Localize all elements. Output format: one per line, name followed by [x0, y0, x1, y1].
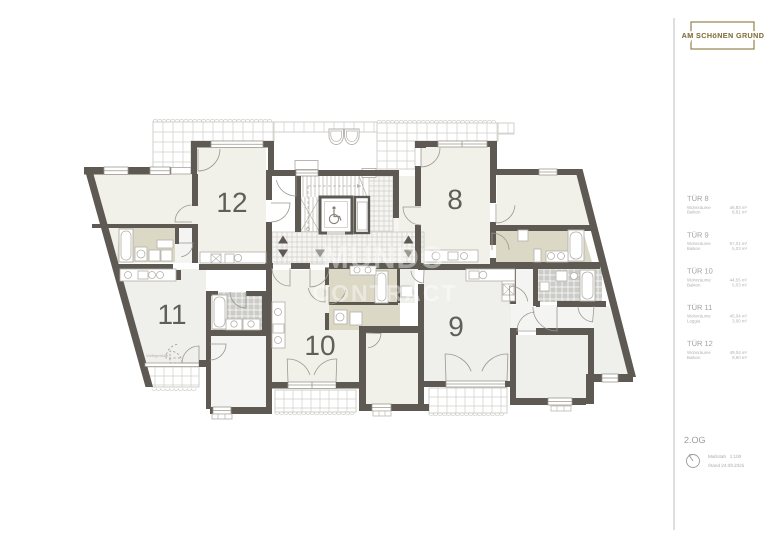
svg-text:8,61 m²: 8,61 m²: [732, 210, 747, 215]
svg-text:Stand 24.09.2025: Stand 24.09.2025: [708, 463, 745, 468]
svg-text:Loggia: Loggia: [687, 319, 701, 324]
svg-text:3,00 m²: 3,00 m²: [732, 319, 747, 324]
svg-text:2.OG: 2.OG: [684, 435, 706, 445]
svg-text:TÜR 12: TÜR 12: [687, 339, 713, 348]
svg-text:Balkon: Balkon: [687, 246, 701, 251]
svg-text:Vorlegestufe: Vorlegestufe: [146, 353, 169, 358]
svg-text:10: 10: [304, 330, 335, 361]
svg-text:Balkon: Balkon: [687, 355, 701, 360]
svg-text:12: 12: [216, 187, 247, 218]
svg-text:Maßstab 1:100: Maßstab 1:100: [708, 454, 742, 459]
svg-text:5,03 m²: 5,03 m²: [732, 282, 747, 287]
svg-text:Balkon: Balkon: [687, 210, 701, 215]
svg-text:9: 9: [448, 311, 464, 342]
svg-text:5,03 m²: 5,03 m²: [732, 246, 747, 251]
svg-text:AM SCHöNEN GRUND: AM SCHöNEN GRUND: [682, 31, 765, 40]
svg-text:TÜR 9: TÜR 9: [687, 230, 709, 239]
svg-text:CONTRACT: CONTRACT: [312, 280, 457, 306]
svg-text:Balkon: Balkon: [687, 282, 701, 287]
svg-text:8: 8: [447, 184, 463, 215]
svg-text:8,60 m²: 8,60 m²: [732, 355, 747, 360]
svg-text:MUNDO: MUNDO: [323, 240, 445, 275]
svg-text:TÜR 10: TÜR 10: [687, 267, 713, 276]
svg-text:11: 11: [157, 299, 186, 330]
svg-text:TÜR 11: TÜR 11: [687, 303, 712, 312]
svg-text:TÜR 8: TÜR 8: [687, 194, 709, 203]
